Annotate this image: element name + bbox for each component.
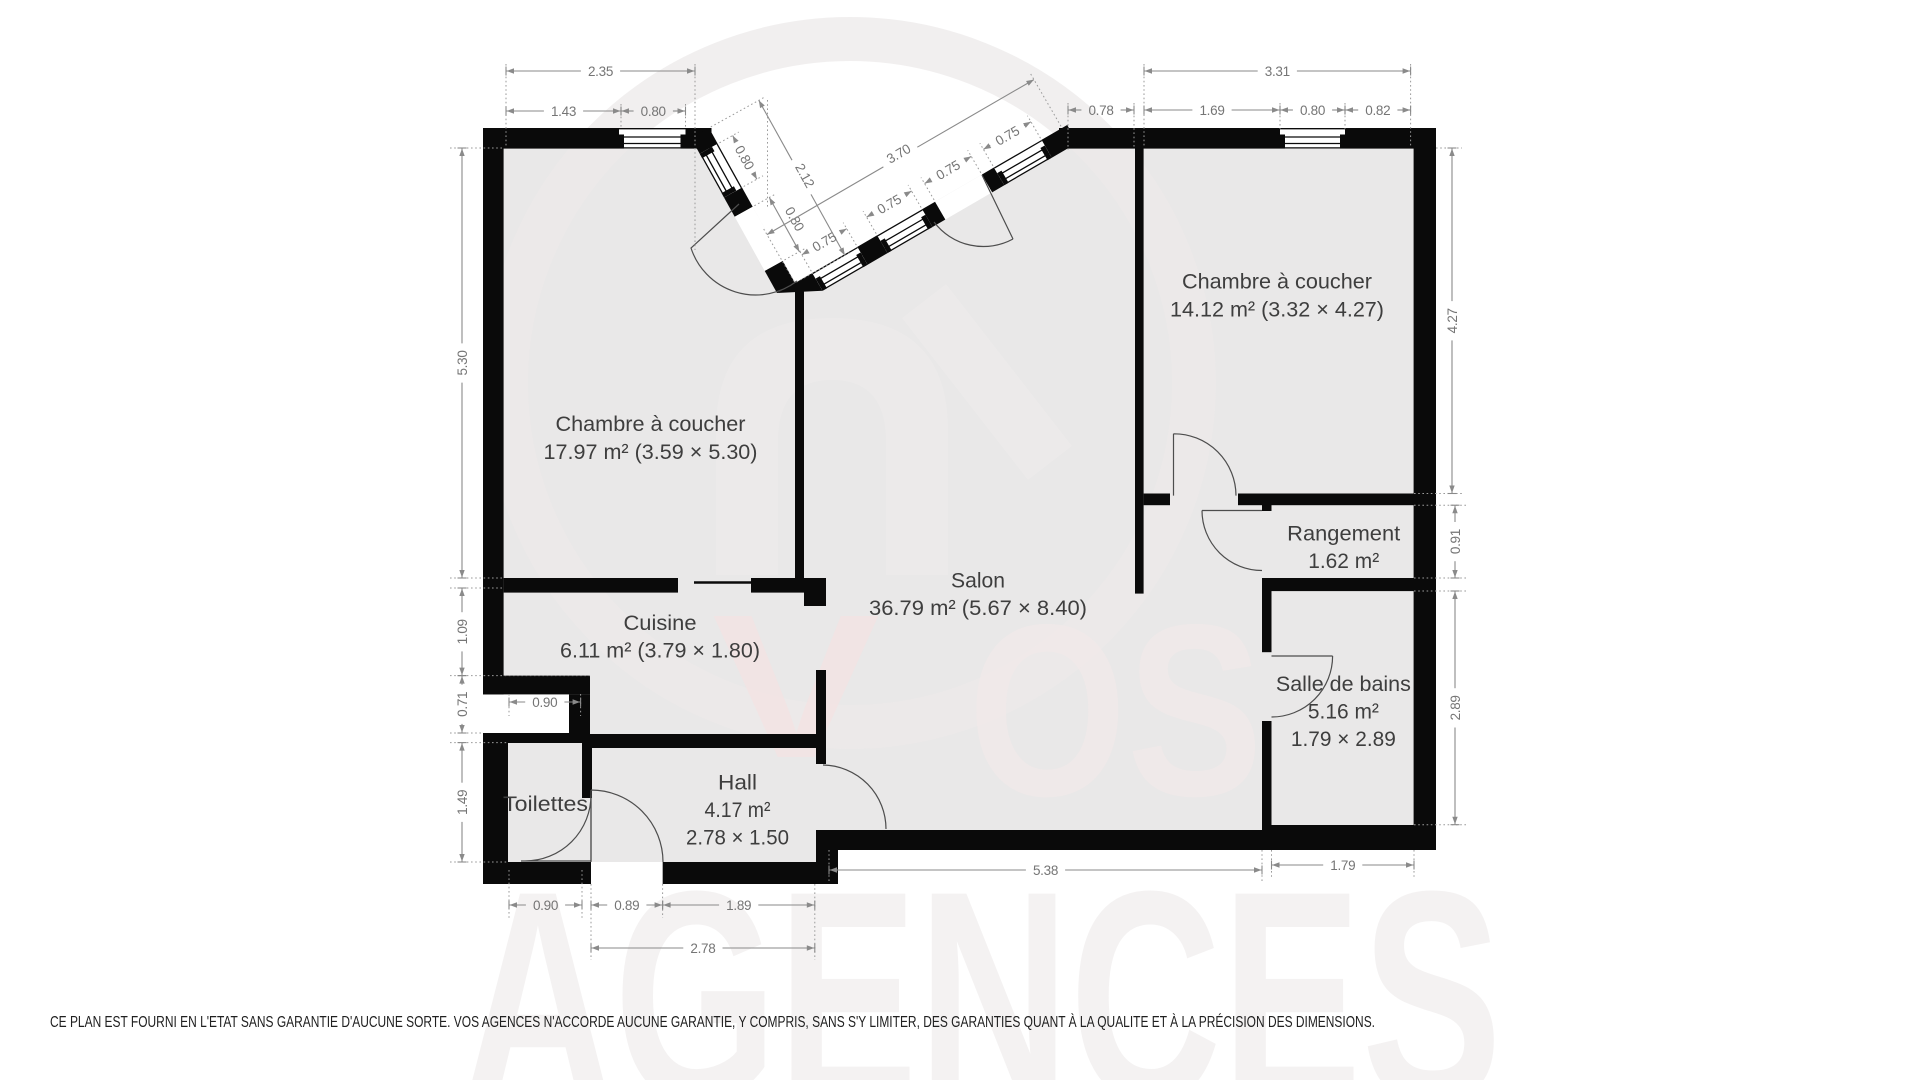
svg-text:Toilettes: Toilettes [503, 792, 588, 816]
svg-text:Cuisine: Cuisine [624, 611, 697, 635]
svg-text:1.79 × 2.89: 1.79 × 2.89 [1291, 727, 1396, 751]
svg-text:0.89: 0.89 [614, 898, 639, 913]
svg-text:3.31: 3.31 [1265, 64, 1290, 79]
svg-text:14.12 m² (3.32 × 4.27): 14.12 m² (3.32 × 4.27) [1170, 298, 1384, 322]
svg-text:2.89: 2.89 [1448, 695, 1463, 720]
svg-text:4.27: 4.27 [1445, 308, 1460, 333]
svg-text:0.90: 0.90 [532, 695, 557, 710]
svg-text:Salle de bains: Salle de bains [1276, 672, 1411, 696]
svg-text:0.90: 0.90 [533, 898, 558, 913]
svg-text:0.80: 0.80 [1300, 103, 1325, 118]
svg-text:V: V [712, 572, 880, 801]
svg-text:0.71: 0.71 [455, 692, 470, 717]
svg-text:5.30: 5.30 [455, 350, 470, 375]
svg-text:1.43: 1.43 [551, 104, 576, 119]
svg-text:1.49: 1.49 [455, 790, 470, 815]
svg-text:5.38: 5.38 [1033, 863, 1058, 878]
svg-text:0.80: 0.80 [641, 104, 666, 119]
svg-text:Hall: Hall [718, 771, 757, 795]
svg-text:1.79: 1.79 [1330, 858, 1355, 873]
svg-text:1.89: 1.89 [726, 898, 751, 913]
svg-text:1.62 m²: 1.62 m² [1308, 549, 1379, 573]
svg-text:2.78: 2.78 [690, 941, 715, 956]
svg-text:5.16 m²: 5.16 m² [1308, 700, 1379, 724]
svg-text:0.91: 0.91 [1448, 529, 1463, 554]
svg-text:Salon: Salon [951, 569, 1005, 593]
svg-text:1.09: 1.09 [455, 619, 470, 644]
svg-text:0.78: 0.78 [1088, 103, 1113, 118]
svg-text:0.82: 0.82 [1365, 103, 1390, 118]
svg-text:Chambre à coucher: Chambre à coucher [556, 412, 746, 436]
svg-text:36.79 m² (5.67 × 8.40): 36.79 m² (5.67 × 8.40) [869, 596, 1087, 620]
svg-text:Rangement: Rangement [1287, 522, 1400, 546]
svg-text:4.17 m²: 4.17 m² [705, 798, 771, 822]
svg-text:2.78 × 1.50: 2.78 × 1.50 [686, 826, 789, 850]
svg-text:2.35: 2.35 [588, 64, 613, 79]
svg-text:17.97 m² (3.59 × 5.30): 17.97 m² (3.59 × 5.30) [544, 440, 758, 464]
svg-text:Chambre à coucher: Chambre à coucher [1182, 270, 1372, 294]
svg-text:6.11 m² (3.79 × 1.80): 6.11 m² (3.79 × 1.80) [560, 639, 760, 663]
svg-text:CE PLAN EST FOURNI EN L'ETAT S: CE PLAN EST FOURNI EN L'ETAT SANS GARANT… [50, 1012, 1375, 1031]
svg-text:1.69: 1.69 [1199, 103, 1224, 118]
